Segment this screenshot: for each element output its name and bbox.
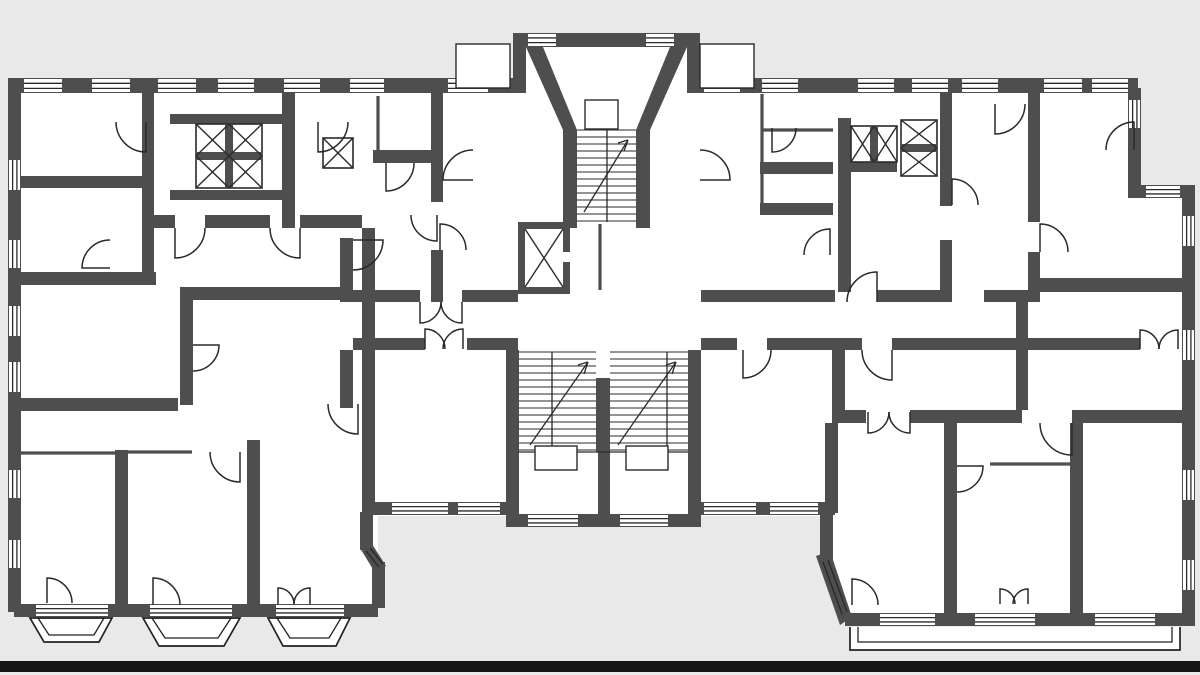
scan-artifact-bar bbox=[0, 661, 1200, 672]
floor-plan-svg bbox=[0, 0, 1200, 675]
floor-plan-image bbox=[0, 0, 1200, 675]
